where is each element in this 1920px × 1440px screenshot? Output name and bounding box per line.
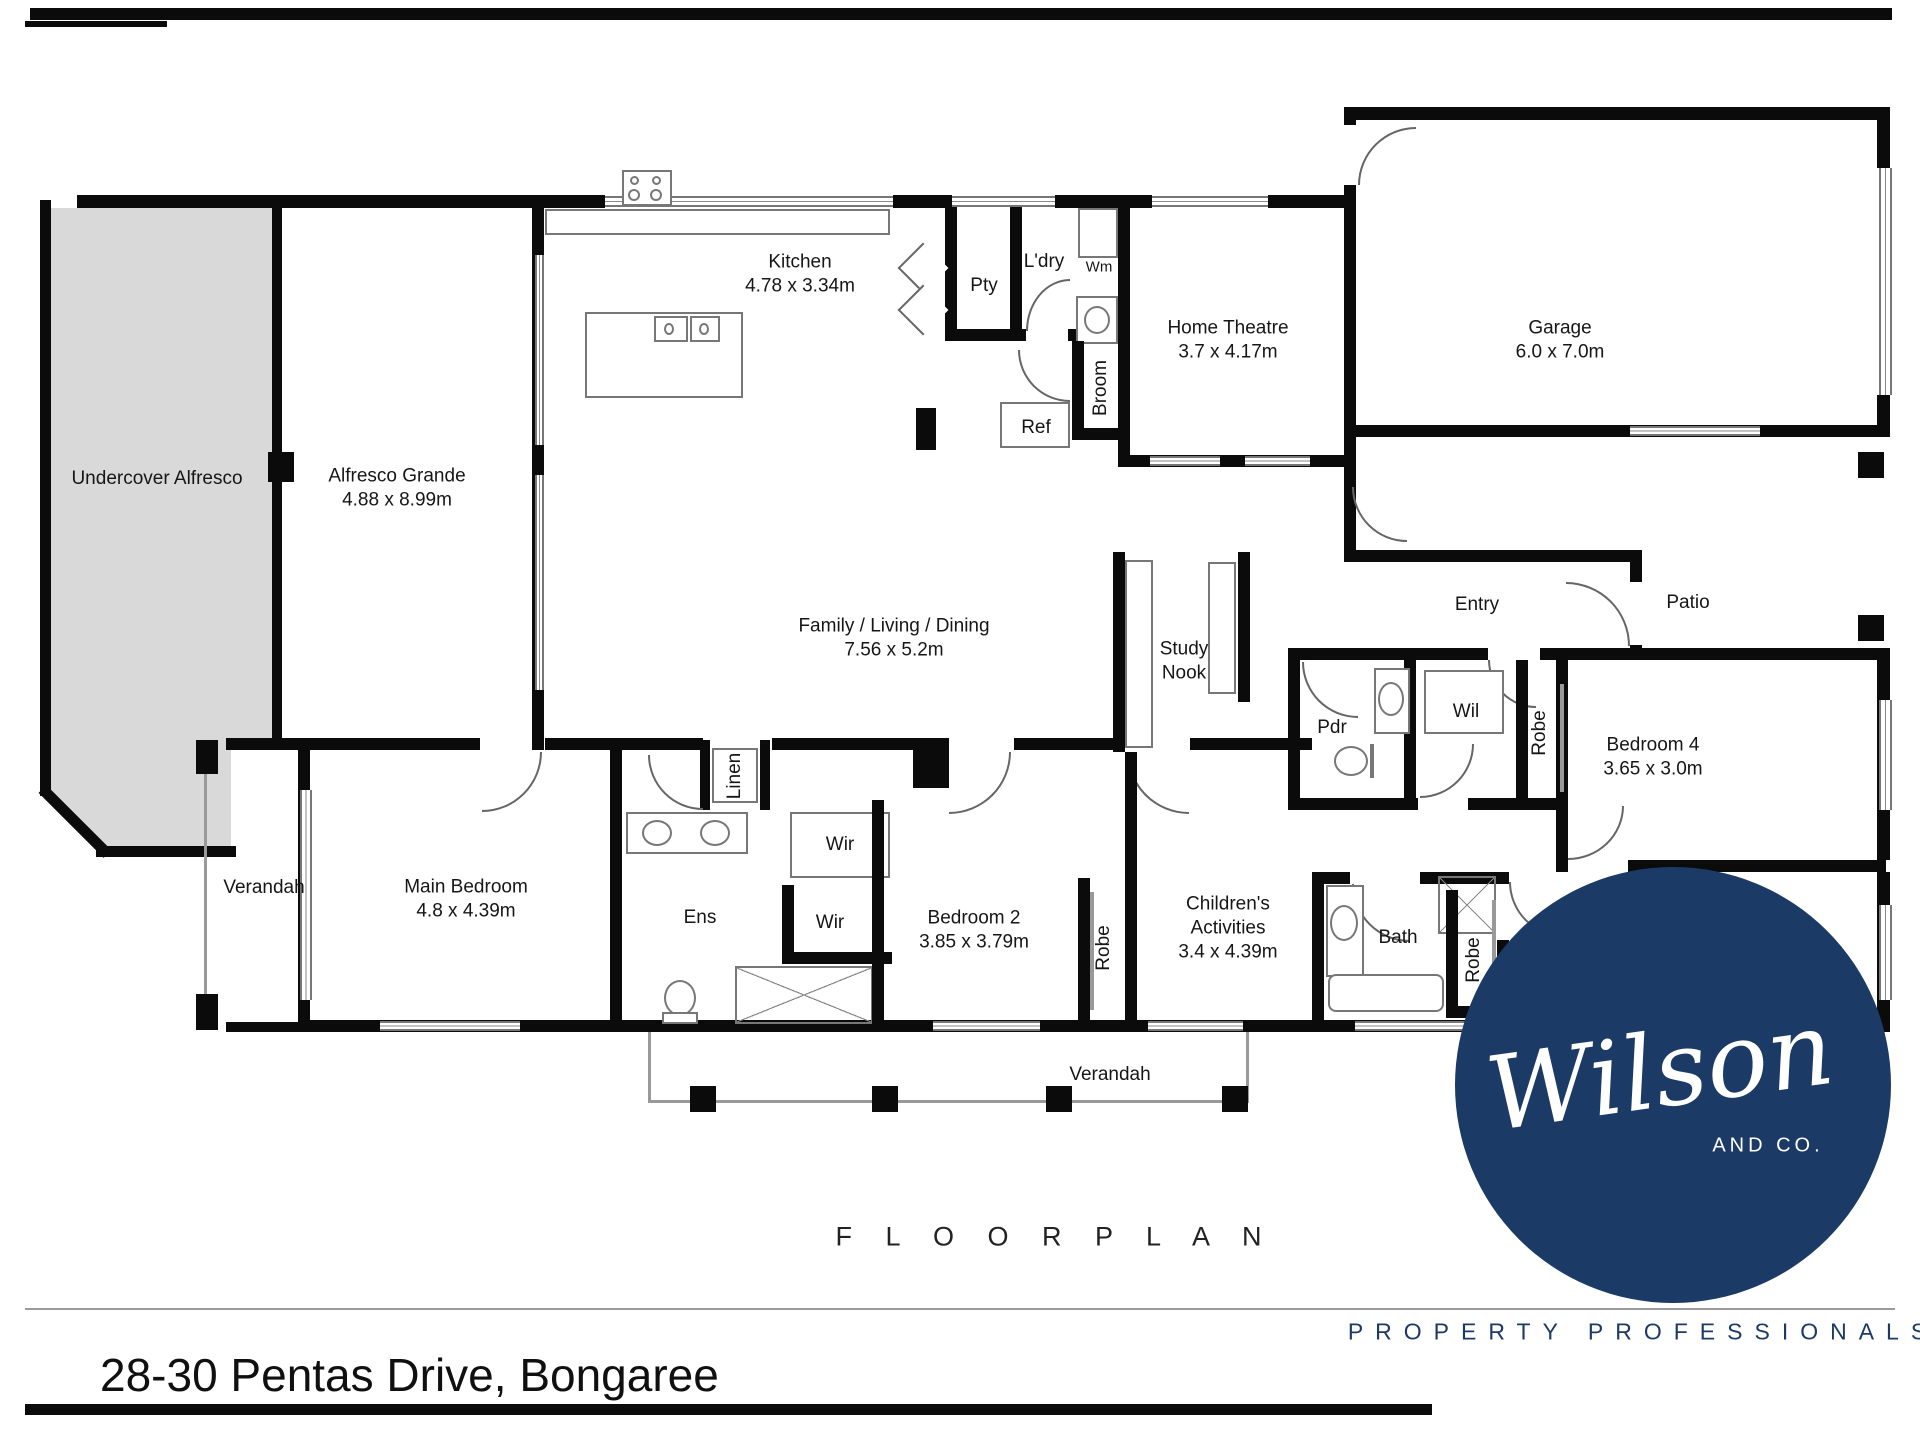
window-icon (535, 475, 544, 690)
wall-segment (1288, 798, 1418, 810)
oval (700, 820, 730, 846)
room-label-bedroom4: Bedroom 43.65 x 3.0m (1603, 733, 1702, 781)
room-label-line: Ref (1021, 416, 1051, 440)
oval (664, 323, 674, 335)
patio-post (1858, 615, 1884, 641)
room-label-line: 4.8 x 4.39m (404, 899, 528, 923)
room-label-line: Alfresco Grande (328, 464, 465, 488)
oval (628, 189, 640, 201)
wall-segment (1238, 552, 1250, 702)
thin (662, 1012, 698, 1024)
tline (648, 1032, 651, 1102)
post (196, 740, 218, 774)
room-label-line: Verandah (1069, 1063, 1150, 1087)
wall-segment (226, 738, 480, 750)
floor-plan-title: F L O O R P L A N (835, 1222, 1274, 1253)
patio-post (1858, 452, 1884, 478)
room-label-bath: Bath (1378, 926, 1417, 950)
window-icon (933, 1021, 1040, 1031)
wall-segment (1540, 648, 1886, 660)
room-label-line: Linen (723, 753, 747, 800)
room-label-pdr: Pdr (1317, 716, 1347, 740)
bottom-rule-bar (25, 1404, 1432, 1415)
oval (699, 323, 709, 335)
room-label-kitchen: Kitchen4.78 x 3.34m (745, 250, 855, 298)
wall-segment (1113, 552, 1125, 752)
room-label-family-living-dining: Family / Living / Dining7.56 x 5.2m (798, 614, 989, 662)
room-label-study-nook: StudyNook (1160, 637, 1209, 685)
room-label-line: Robe (1092, 925, 1116, 970)
room-label-line: 7.56 x 5.2m (798, 638, 989, 662)
wall-segment (1288, 660, 1300, 810)
room-label-bedroom2: Bedroom 23.85 x 3.79m (919, 906, 1029, 954)
room-label-line: Main Bedroom (404, 875, 528, 899)
property-address: 28-30 Pentas Drive, Bongaree (100, 1348, 719, 1402)
room-label-robe-bed4: Robe (1528, 710, 1552, 755)
room-label-line: Kitchen (745, 250, 855, 274)
toilet-icon (1334, 746, 1368, 776)
post (196, 994, 218, 1030)
oval (652, 176, 661, 185)
verandah-post (690, 1086, 716, 1112)
floor-plan-page: Undercover AlfrescoAlfresco Grande4.88 x… (0, 0, 1920, 1440)
room-label-line: Bedroom 2 (919, 906, 1029, 930)
wall-segment (1010, 207, 1022, 333)
room-label-linen: Linen (723, 753, 747, 800)
pdr-door-arc (1302, 662, 1358, 718)
room-label-line: Bedroom 4 (1603, 733, 1702, 757)
room-label-line: Study (1160, 637, 1209, 661)
room-label-broom: Broom (1089, 360, 1113, 416)
room-label-line: Garage (1516, 316, 1605, 340)
oval (642, 820, 672, 846)
wall-segment (1356, 107, 1890, 120)
bathtub-icon (1328, 974, 1444, 1012)
room-label-entry: Entry (1455, 593, 1499, 617)
room-label-line: Bath (1378, 926, 1417, 950)
wall-segment (96, 846, 236, 857)
window-icon (1355, 1021, 1465, 1031)
window-icon (535, 255, 544, 445)
room-label-line: 3.65 x 3.0m (1603, 757, 1702, 781)
window-icon (1150, 456, 1220, 466)
room-label-line: Pdr (1317, 716, 1347, 740)
wall-segment (1497, 872, 1509, 884)
room-label-line: Verandah (223, 876, 304, 900)
room-label-wil: Wil (1453, 700, 1479, 724)
wall-segment (772, 738, 913, 750)
oval (1330, 905, 1358, 941)
washing-machine-icon (1078, 208, 1118, 258)
hall-door-arc2 (1352, 487, 1407, 542)
room-label-main-bedroom: Main Bedroom4.8 x 4.39m (404, 875, 528, 923)
wall-segment (1356, 425, 1890, 437)
room-label-line: Ens (684, 906, 717, 930)
window-icon (380, 1021, 520, 1031)
room-label-line: Entry (1455, 593, 1499, 617)
verandah-post (1046, 1086, 1072, 1112)
room-label-patio: Patio (1666, 591, 1709, 615)
garage-door-arc (1358, 127, 1416, 185)
room-label-home-theatre: Home Theatre3.7 x 4.17m (1167, 316, 1288, 364)
wall-segment (1877, 107, 1890, 168)
room-label-ldry: L'dry (1024, 250, 1065, 274)
post (268, 452, 294, 482)
room-label-line: Robe (1462, 937, 1486, 982)
wall-segment (782, 885, 794, 955)
wall-segment (1072, 341, 1084, 440)
room-label-line: Wir (816, 911, 844, 935)
room-label-garage: Garage6.0 x 7.0m (1516, 316, 1605, 364)
verandah-post (1222, 1086, 1248, 1112)
divider-line (25, 1308, 1895, 1310)
room-label-line: Pty (970, 274, 997, 298)
wall-segment (1010, 329, 1026, 341)
study-desk (1125, 560, 1153, 748)
wall-segment (760, 740, 770, 810)
tline (648, 1100, 1249, 1103)
wall-segment (1055, 195, 1152, 208)
room-label-line: L'dry (1024, 250, 1065, 274)
wall-segment (1312, 872, 1350, 884)
stove-icon (622, 170, 672, 206)
front-door-arc (1566, 582, 1630, 646)
room-label-wm: Wm (1086, 259, 1113, 278)
room-label-line: 4.88 x 8.99m (328, 488, 465, 512)
window-icon (1879, 905, 1892, 1000)
oval (1084, 306, 1110, 334)
room-label-undercover-alfresco: Undercover Alfresco (71, 467, 242, 491)
wilson-logo-sub: AND CO. (1712, 1135, 1823, 1158)
room-label-line: Broom (1089, 360, 1113, 416)
wall-segment (1268, 195, 1356, 208)
room-label-ref: Ref (1021, 416, 1051, 440)
post (916, 408, 936, 450)
wall-segment (1344, 550, 1642, 562)
hall-door-arc (1018, 350, 1070, 402)
room-label-verandah-left: Verandah (223, 876, 304, 900)
wall-segment (1468, 798, 1516, 810)
wall-segment (945, 207, 957, 333)
toilet-icon (664, 980, 696, 1016)
wall-segment (893, 195, 952, 208)
room-label-wir-lower: Wir (816, 911, 844, 935)
room-label-line: Undercover Alfresco (71, 467, 242, 491)
room-label-line: Activities (1178, 916, 1277, 940)
room-label-robe-bed2: Robe (1092, 925, 1116, 970)
verandah-post (872, 1086, 898, 1112)
room-label-line: Nook (1160, 661, 1209, 685)
post (913, 738, 949, 788)
room-label-line: 3.85 x 3.79m (919, 930, 1029, 954)
room-label-childrens-activities: Children'sActivities3.4 x 4.39m (1178, 892, 1277, 963)
room-label-robe-bed3: Robe (1462, 937, 1486, 982)
wall-segment (1288, 648, 1488, 660)
room-label-wir-upper: Wir (826, 833, 854, 857)
wall-segment (77, 195, 543, 208)
ens-door-arc (648, 755, 703, 810)
room-label-line: 4.78 x 3.34m (745, 274, 855, 298)
room-label-line: Wir (826, 833, 854, 857)
room-label-line: Patio (1666, 591, 1709, 615)
bedroom4-door-arc (1568, 806, 1624, 860)
wall-segment (610, 750, 622, 1032)
wall-segment (1125, 752, 1137, 1032)
wall-segment (1118, 207, 1130, 467)
room-label-line: Wil (1453, 700, 1479, 724)
window-icon (1152, 196, 1268, 207)
window-icon (1879, 700, 1892, 810)
room-label-line: Robe (1528, 710, 1552, 755)
wall-segment (1446, 890, 1458, 1018)
tline (1560, 684, 1564, 792)
wall-segment (1370, 744, 1374, 778)
wall-segment (1630, 562, 1642, 582)
wall-segment (1190, 738, 1312, 750)
wall-segment (226, 1022, 302, 1032)
room-label-line: Family / Living / Dining (798, 614, 989, 638)
oval (1378, 682, 1404, 716)
wall-segment (40, 200, 51, 796)
wall-segment (1078, 878, 1090, 1032)
window-icon (952, 196, 1055, 207)
wall-segment (1014, 738, 1125, 750)
room-label-line: Home Theatre (1167, 316, 1288, 340)
bedroom2-door-arc (949, 752, 1011, 814)
room-label-line: Wm (1086, 259, 1113, 278)
main-bedroom-door-arc (482, 752, 542, 812)
logo-tagline: PROPERTY PROFESSIONALS (1348, 1319, 1920, 1346)
chev (898, 285, 949, 336)
ens-shower-icon (735, 966, 873, 1024)
oval (630, 176, 639, 185)
room-label-verandah-bottom: Verandah (1069, 1063, 1150, 1087)
room-label-line: 3.7 x 4.17m (1167, 340, 1288, 364)
oval (650, 189, 662, 201)
study-desk (1208, 562, 1236, 694)
wil-door-arc (1420, 744, 1474, 798)
window-icon (1879, 168, 1892, 395)
wall-segment (1556, 860, 1568, 872)
room-label-alfresco-grande: Alfresco Grande4.88 x 8.99m (328, 464, 465, 512)
wall-segment (543, 195, 605, 208)
window-icon (1148, 1021, 1243, 1031)
tline (204, 774, 207, 994)
room-label-line: 6.0 x 7.0m (1516, 340, 1605, 364)
room-label-line: 3.4 x 4.39m (1178, 940, 1277, 964)
room-label-pty: Pty (970, 274, 997, 298)
kitchen-counter (545, 209, 890, 235)
wall-segment (545, 738, 703, 750)
window-icon (1630, 426, 1760, 436)
room-label-ens: Ens (684, 906, 717, 930)
laundry-door-arc (1026, 279, 1070, 331)
wall-segment (1312, 872, 1324, 1032)
wall-segment (872, 800, 884, 1032)
wall-segment (1344, 107, 1356, 125)
room-label-line: Children's (1178, 892, 1277, 916)
wall-segment (1516, 660, 1528, 810)
window-icon (1245, 456, 1310, 466)
